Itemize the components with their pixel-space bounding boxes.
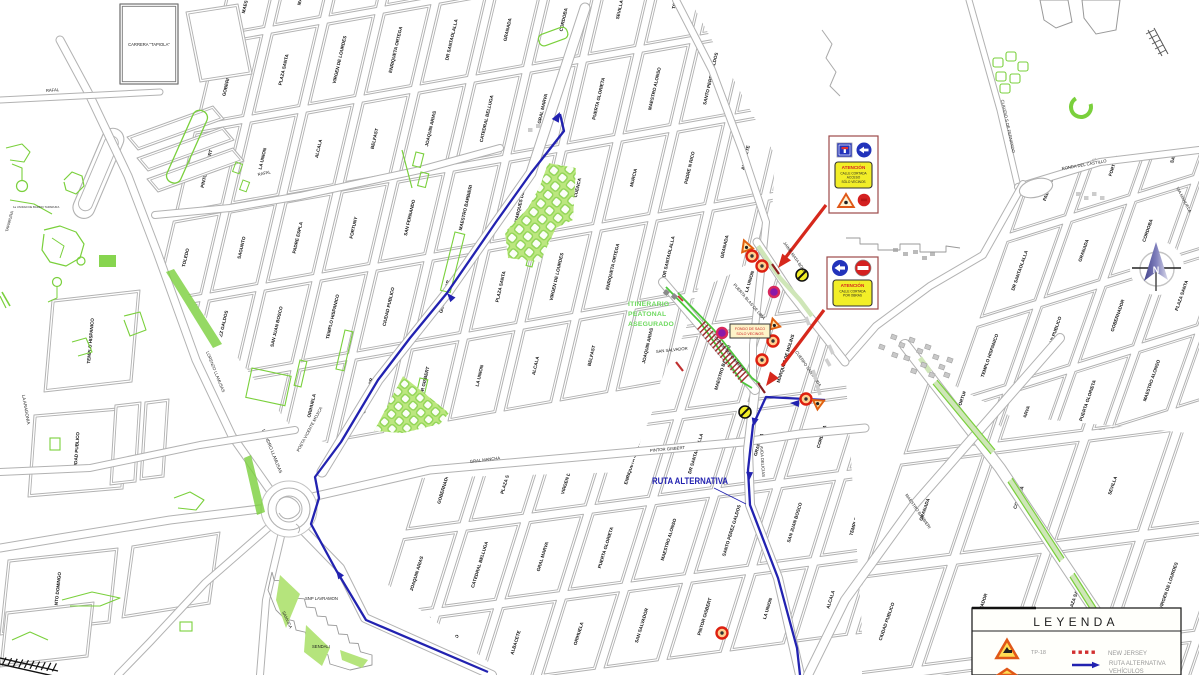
svg-text:SÓLO VECINOS: SÓLO VECINOS	[841, 179, 865, 184]
svg-text:SNP LAVRAMON: SNP LAVRAMON	[305, 596, 338, 601]
svg-text:PEATONAL: PEATONAL	[628, 311, 666, 318]
svg-text:N: N	[1153, 265, 1160, 275]
svg-text:CARRERA "TAPIOLA": CARRERA "TAPIOLA"	[128, 42, 170, 47]
svg-text:SOLO VECINOS: SOLO VECINOS	[736, 332, 764, 336]
svg-text:ATENCIÓN: ATENCIÓN	[841, 281, 865, 288]
svg-text:TP-18: TP-18	[1031, 650, 1046, 656]
svg-text:RUTA ALTERNATIVA: RUTA ALTERNATIVA	[652, 476, 728, 486]
svg-text:FONDO DE SACO: FONDO DE SACO	[735, 327, 765, 331]
svg-text:ASEGURADO: ASEGURADO	[628, 321, 674, 328]
svg-text:POR OBRAS: POR OBRAS	[843, 294, 862, 298]
svg-text:1a UNIDAD DE BARRIO TAPARURA: 1a UNIDAD DE BARRIO TAPARURA	[13, 205, 59, 209]
svg-text:SENDALI: SENDALI	[312, 644, 330, 649]
svg-text:RAFAL: RAFAL	[46, 87, 60, 93]
svg-text:VEHÍCULOS: VEHÍCULOS	[1109, 668, 1144, 675]
svg-text:LEYENDA: LEYENDA	[1033, 615, 1118, 629]
svg-text:RUTA ALTERNATIVA: RUTA ALTERNATIVA	[1109, 661, 1166, 667]
svg-text:ATENCIÓN: ATENCIÓN	[842, 163, 866, 170]
svg-text:NEW JERSEY: NEW JERSEY	[1108, 651, 1147, 657]
svg-text:ITINERARIO: ITINERARIO	[628, 301, 669, 308]
